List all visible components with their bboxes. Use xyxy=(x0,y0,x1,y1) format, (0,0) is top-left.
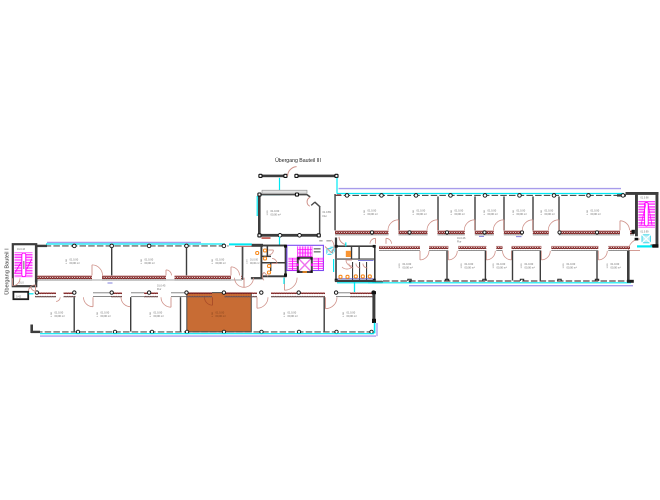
svg-text:00,00 m²: 00,00 m² xyxy=(154,314,164,318)
svg-text:1.OG: 1.OG xyxy=(141,258,143,264)
svg-text:01.0.00: 01.0.00 xyxy=(517,208,526,212)
svg-text:00,00 m²: 00,00 m² xyxy=(347,314,357,318)
svg-text:00,00 m²: 00,00 m² xyxy=(497,266,507,270)
svg-text:00,00 m²: 00,00 m² xyxy=(455,212,465,216)
svg-text:1.OG: 1.OG xyxy=(607,263,609,269)
svg-text:00,00 m²: 00,00 m² xyxy=(271,213,281,217)
svg-text:Flur: Flur xyxy=(157,288,161,291)
svg-text:1.OG: 1.OG xyxy=(267,210,269,216)
svg-text:00,00 m²: 00,00 m² xyxy=(417,212,427,216)
svg-text:01.0.99: 01.0.99 xyxy=(641,231,650,234)
svg-text:1.OG: 1.OG xyxy=(587,209,589,215)
svg-text:1.OG: 1.OG xyxy=(284,311,286,317)
svg-text:00,00 m²: 00,00 m² xyxy=(525,266,535,270)
svg-text:1.OG: 1.OG xyxy=(521,263,523,269)
svg-text:1.OG: 1.OG xyxy=(97,311,99,317)
svg-text:01.0.00: 01.0.00 xyxy=(465,262,474,266)
svg-text:01.0.00: 01.0.00 xyxy=(101,310,110,314)
svg-text:01.0.00: 01.0.00 xyxy=(216,310,225,314)
svg-text:00,00 m²: 00,00 m² xyxy=(288,314,298,318)
svg-text:01.0.00: 01.0.00 xyxy=(417,208,426,212)
svg-text:01.0: 01.0 xyxy=(19,282,24,285)
svg-text:1.OG: 1.OG xyxy=(413,209,415,215)
svg-text:1.OG: 1.OG xyxy=(461,263,463,269)
svg-text:01.0.00: 01.0.00 xyxy=(488,208,497,212)
svg-text:01.0.00: 01.0.00 xyxy=(288,310,297,314)
svg-text:01.0.00: 01.0.00 xyxy=(368,208,377,212)
svg-text:1.OG: 1.OG xyxy=(563,263,565,269)
svg-text:00,00 m²: 00,00 m² xyxy=(368,212,378,216)
svg-text:1.OG: 1.OG xyxy=(451,209,453,215)
svg-text:00,00 m²: 00,00 m² xyxy=(216,314,226,318)
svg-text:01.0.00: 01.0.00 xyxy=(145,257,154,261)
svg-text:01.0.00: 01.0.00 xyxy=(271,209,280,213)
svg-text:01.0.00: 01.0.00 xyxy=(70,257,79,261)
svg-text:1.OG: 1.OG xyxy=(212,311,214,317)
svg-text:00,00 m²: 00,00 m² xyxy=(545,212,555,216)
svg-text:00,00 m²: 00,00 m² xyxy=(250,262,260,265)
svg-text:01.0.00: 01.0.00 xyxy=(497,262,506,266)
svg-text:00,00 m²: 00,00 m² xyxy=(488,212,498,216)
svg-text:01.0.98: 01.0.98 xyxy=(641,197,650,200)
svg-text:01.0.00: 01.0.00 xyxy=(55,310,64,314)
svg-text:01.0.00: 01.0.00 xyxy=(591,208,600,212)
svg-text:01.0.00: 01.0.00 xyxy=(403,262,412,266)
svg-text:01.0.00: 01.0.00 xyxy=(347,310,356,314)
svg-text:Übergang Bauteil III: Übergang Bauteil III xyxy=(275,157,321,164)
svg-text:Flur: Flur xyxy=(323,215,327,218)
svg-text:01.0.00: 01.0.00 xyxy=(455,208,464,212)
svg-text:Übergang Bauteil I: Übergang Bauteil I xyxy=(4,248,11,295)
svg-text:0.42: 0.42 xyxy=(16,294,22,298)
svg-text:1.OG: 1.OG xyxy=(399,263,401,269)
svg-text:1.OG: 1.OG xyxy=(513,209,515,215)
svg-text:1.OG: 1.OG xyxy=(66,258,68,264)
svg-text:01.0.00: 01.0.00 xyxy=(567,262,576,266)
svg-text:01.0.00: 01.0.00 xyxy=(154,310,163,314)
svg-text:00,00 m²: 00,00 m² xyxy=(567,266,577,270)
svg-text:1.OG: 1.OG xyxy=(493,263,495,269)
svg-text:00,00 m²: 00,00 m² xyxy=(55,314,65,318)
svg-text:00,00 m²: 00,00 m² xyxy=(101,314,111,318)
svg-text:1.OG: 1.OG xyxy=(484,209,486,215)
svg-text:00,00 m²: 00,00 m² xyxy=(591,212,601,216)
svg-text:01.0.00: 01.0.00 xyxy=(216,257,225,261)
svg-text:1.OG: 1.OG xyxy=(212,258,214,264)
svg-text:1.OG: 1.OG xyxy=(343,311,345,317)
svg-text:1.OG: 1.OG xyxy=(541,209,543,215)
svg-text:01.0.00: 01.0.00 xyxy=(525,262,534,266)
svg-text:01.0.00: 01.0.00 xyxy=(611,262,620,266)
svg-text:01.0.89: 01.0.89 xyxy=(323,211,332,214)
svg-text:01.0.00: 01.0.00 xyxy=(250,258,259,261)
svg-text:1.OG: 1.OG xyxy=(51,311,53,317)
svg-text:00,00 m²: 00,00 m² xyxy=(145,261,155,265)
svg-text:00,00 m²: 00,00 m² xyxy=(611,266,621,270)
svg-text:00,00 m²: 00,00 m² xyxy=(403,266,413,270)
svg-text:00,00 m²: 00,00 m² xyxy=(70,261,80,265)
svg-text:1.OG: 1.OG xyxy=(246,259,248,264)
svg-text:1.OG: 1.OG xyxy=(150,311,152,317)
svg-text:01.0.00: 01.0.00 xyxy=(545,208,554,212)
svg-text:00,00 m²: 00,00 m² xyxy=(216,261,226,265)
svg-text:00,00 m²: 00,00 m² xyxy=(465,266,475,270)
svg-text:01.0.43: 01.0.43 xyxy=(17,248,26,251)
svg-text:1.OG: 1.OG xyxy=(364,209,366,215)
svg-text:00,00 m²: 00,00 m² xyxy=(517,212,527,216)
svg-text:Flur: Flur xyxy=(457,241,461,244)
